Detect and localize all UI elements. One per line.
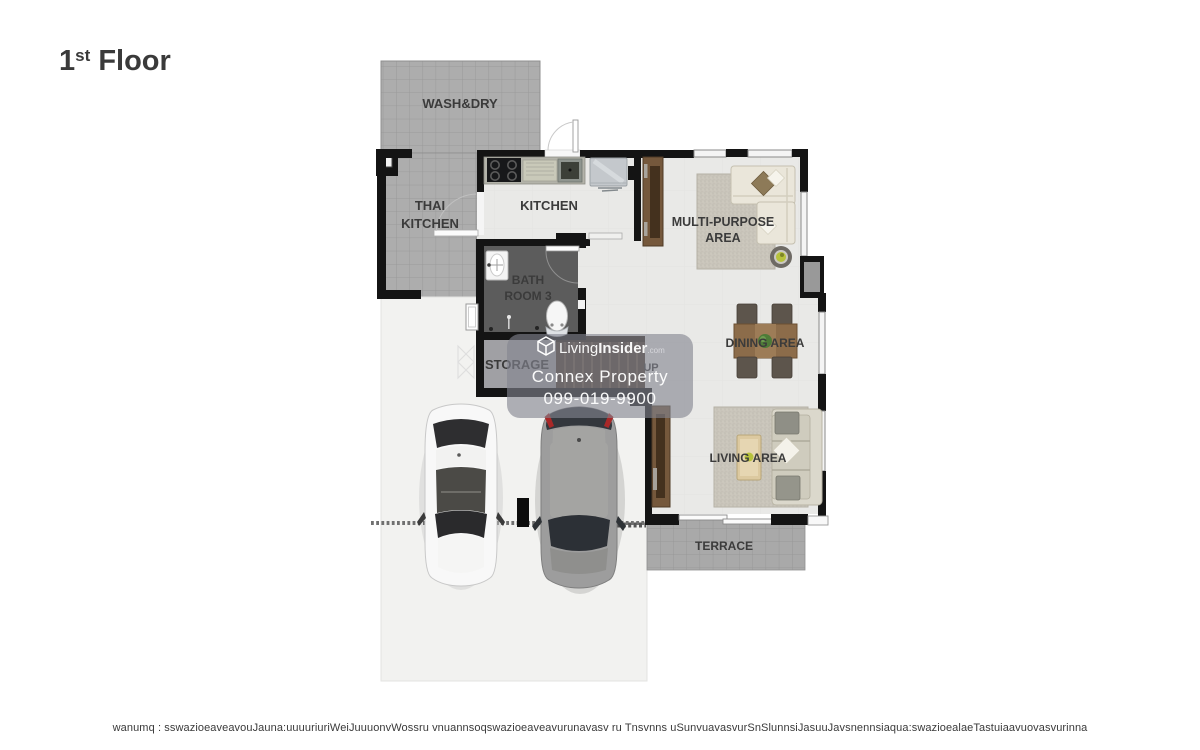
- svg-text:099-019-9900: 099-019-9900: [543, 389, 656, 408]
- svg-text:KITCHEN: KITCHEN: [520, 198, 578, 213]
- svg-text:MULTI-PURPOSE: MULTI-PURPOSE: [672, 215, 775, 229]
- svg-text:wanumq : sswazioeaveavouJauna:: wanumq : sswazioeaveavouJauna:uuuuriuriW…: [112, 722, 1089, 734]
- svg-text:ROOM 3: ROOM 3: [504, 289, 552, 303]
- svg-text:TERRACE: TERRACE: [695, 539, 753, 553]
- svg-text:WASH&DRY: WASH&DRY: [422, 96, 498, 111]
- svg-text:BATH: BATH: [512, 273, 544, 287]
- svg-text:Connex Property: Connex Property: [532, 367, 669, 386]
- svg-text:KITCHEN: KITCHEN: [401, 216, 459, 231]
- svg-text:LIVING AREA: LIVING AREA: [710, 451, 787, 465]
- svg-text:AREA: AREA: [705, 231, 740, 245]
- svg-text:DINING AREA: DINING AREA: [726, 336, 805, 350]
- svg-text:THAI: THAI: [415, 198, 445, 213]
